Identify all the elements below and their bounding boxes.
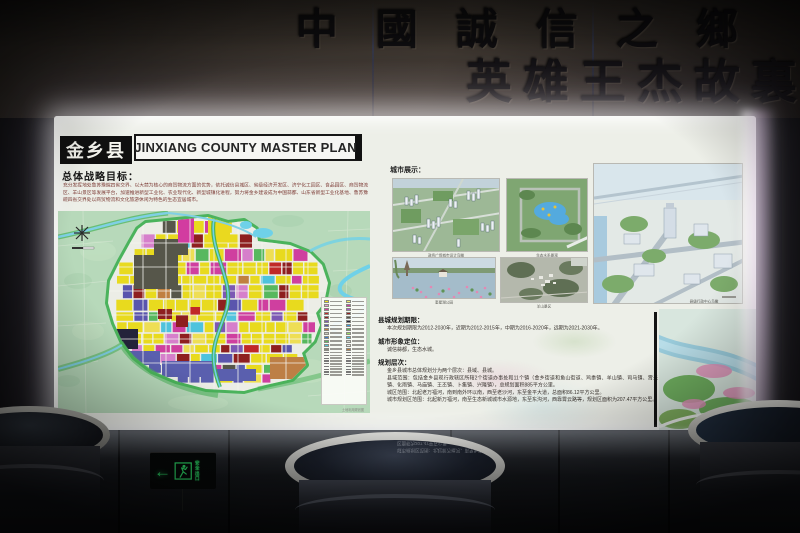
planning-text-sections: 县城规划期限： 本次规划期限为2012-2030年，近期为2012-2015年，… [378, 311, 658, 404]
park-lake-graphic [507, 179, 588, 252]
county-title-cn: 金乡县 [60, 136, 132, 164]
compass-icon [74, 225, 90, 241]
map-caption: 土地利用规划图 [342, 408, 364, 413]
strategy-heading: 总体战略目标： [62, 168, 139, 183]
running-man-icon [174, 460, 192, 482]
strategy-paragraph: 充分发挥地处鲁苏豫皖四省交界、以大蒜为核心的商贸物流方面的优势，依托诚信县城区、… [63, 182, 368, 204]
render-caption: 县级行政中心鸟瞰 [690, 299, 719, 304]
calligraphy-line-2: 英雄王杰故裏 [466, 46, 800, 112]
wall-seam [228, 430, 230, 533]
section-line: 城区范围：北起老万福河，南到南外环以南，西至老沙河，东至金平大道，总面积86.1… [378, 389, 658, 396]
scale-bar [72, 247, 83, 249]
render-lotus-park [392, 257, 496, 299]
exit-sign-text: 安全 出口 [195, 461, 203, 481]
section-line: 诚信蒜都，生态水城。 [378, 346, 658, 353]
county-title-en: JINXIANG COUNTY MASTER PLAN [134, 134, 362, 161]
yangshan-aerial-graphic [501, 258, 588, 303]
section-line: 县域范围：包括金乡县现行政辖区所辖2个街道办事处和11个镇（金乡街道和鱼山街道、… [378, 375, 658, 390]
section-divider-bar [654, 312, 657, 427]
calligraphy-line-1: 中國誠信之鄉 [296, 0, 776, 57]
map-legend [321, 297, 367, 405]
section-line: 本次规划期限为2012-2030年，近期为2012-2015年，中期为2016-… [378, 325, 658, 332]
pedestal-right [688, 400, 800, 533]
landuse-map [58, 211, 370, 413]
upper-wall: 中國誠信之鄉 英雄王杰故裏 [0, 0, 800, 118]
render-caption: 奎星湖公园 [435, 300, 453, 305]
city-display-heading: 城市展示： [390, 165, 425, 175]
wall-seam [668, 430, 670, 533]
pedestal-center: 城市规划区范围：北起新万福河，南至生态新城城市水源地，东至东沟河，西靠霄云路等，… [285, 432, 505, 533]
section-heading: 县城规划期限： [378, 315, 658, 325]
pedestal-left [0, 406, 110, 533]
render-caption: 羊山景区 [537, 304, 551, 309]
wall-seam [558, 430, 560, 533]
render-caption: 生态水系景观 [536, 253, 558, 258]
section-line: 金乡县城市总体规划分为两个层次：县域、县城。 [378, 368, 658, 375]
render-yangshan-aerial [500, 257, 588, 303]
section-heading: 规划层次： [378, 357, 658, 367]
exit-arrow-icon: ← [154, 463, 171, 480]
lotus-park-graphic [393, 258, 496, 299]
render-park-lake [506, 178, 588, 252]
exit-sign: ← 安全 出口 [150, 452, 216, 489]
exhibition-photo: 中國誠信之鄉 英雄王杰故裏 金乡县 JINXIANG COUNTY MASTER… [0, 0, 800, 533]
reflected-text: 城市规划区范围：北起新万福河，南至生态新城城市水源地，东至东沟河，西靠霄云路等，… [397, 440, 496, 454]
wall-seam [592, 0, 594, 118]
masterplan-lightbox: 金乡县 JINXIANG COUNTY MASTER PLAN 总体战略目标： … [54, 116, 756, 430]
wall-seam [372, 0, 374, 118]
wall-seam [118, 430, 120, 533]
render-city-aerial [392, 178, 500, 252]
render-admin-center [593, 163, 743, 304]
city-aerial-graphic [393, 179, 500, 252]
exit-sign-wire [182, 489, 183, 511]
section-line: 城市规划区范围：北起新万福河，南至生态新城城市水源地，东至东沟河，西靠霄云路等，… [378, 397, 658, 404]
render-caption: 政务广场城市设计鸟瞰 [428, 253, 464, 258]
section-heading: 城市形象定位： [378, 336, 658, 346]
strategy-paragraph-wrap: 充分发挥地处鲁苏豫皖四省交界、以大蒜为核心的商贸物流方面的优势，依托诚信县城区、… [63, 182, 368, 204]
admin-center-graphic [594, 164, 743, 304]
